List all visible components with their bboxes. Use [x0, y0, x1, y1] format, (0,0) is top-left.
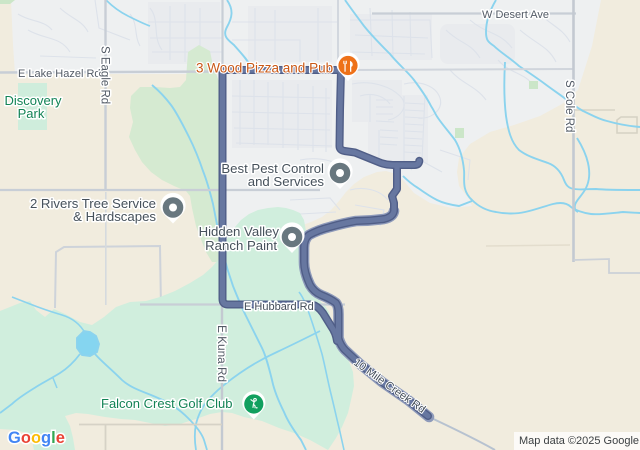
svg-text:E Hubbard Rd: E Hubbard Rd: [244, 301, 314, 313]
svg-text:Hidden Valley: Hidden Valley: [199, 224, 280, 239]
svg-text:Google: Google: [8, 429, 65, 447]
svg-text:3 Wood Pizza and Pub: 3 Wood Pizza and Pub: [196, 61, 333, 76]
svg-text:E Lake Hazel Rd: E Lake Hazel Rd: [18, 68, 101, 80]
svg-text:S Cole Rd: S Cole Rd: [563, 80, 575, 132]
svg-text:Map data ©2025 Google: Map data ©2025 Google: [519, 435, 639, 447]
svg-text:& Hardscapes: & Hardscapes: [73, 209, 156, 224]
svg-text:Ranch Paint: Ranch Paint: [205, 238, 277, 253]
svg-text:and Services: and Services: [248, 174, 325, 189]
svg-text:S Eagle Rd: S Eagle Rd: [99, 46, 111, 104]
svg-text:E Kuna Rd: E Kuna Rd: [215, 325, 229, 382]
svg-text:W Desert Ave: W Desert Ave: [482, 9, 549, 21]
svg-text:Park: Park: [18, 106, 45, 121]
svg-text:Falcon Crest Golf Club: Falcon Crest Golf Club: [101, 396, 233, 411]
